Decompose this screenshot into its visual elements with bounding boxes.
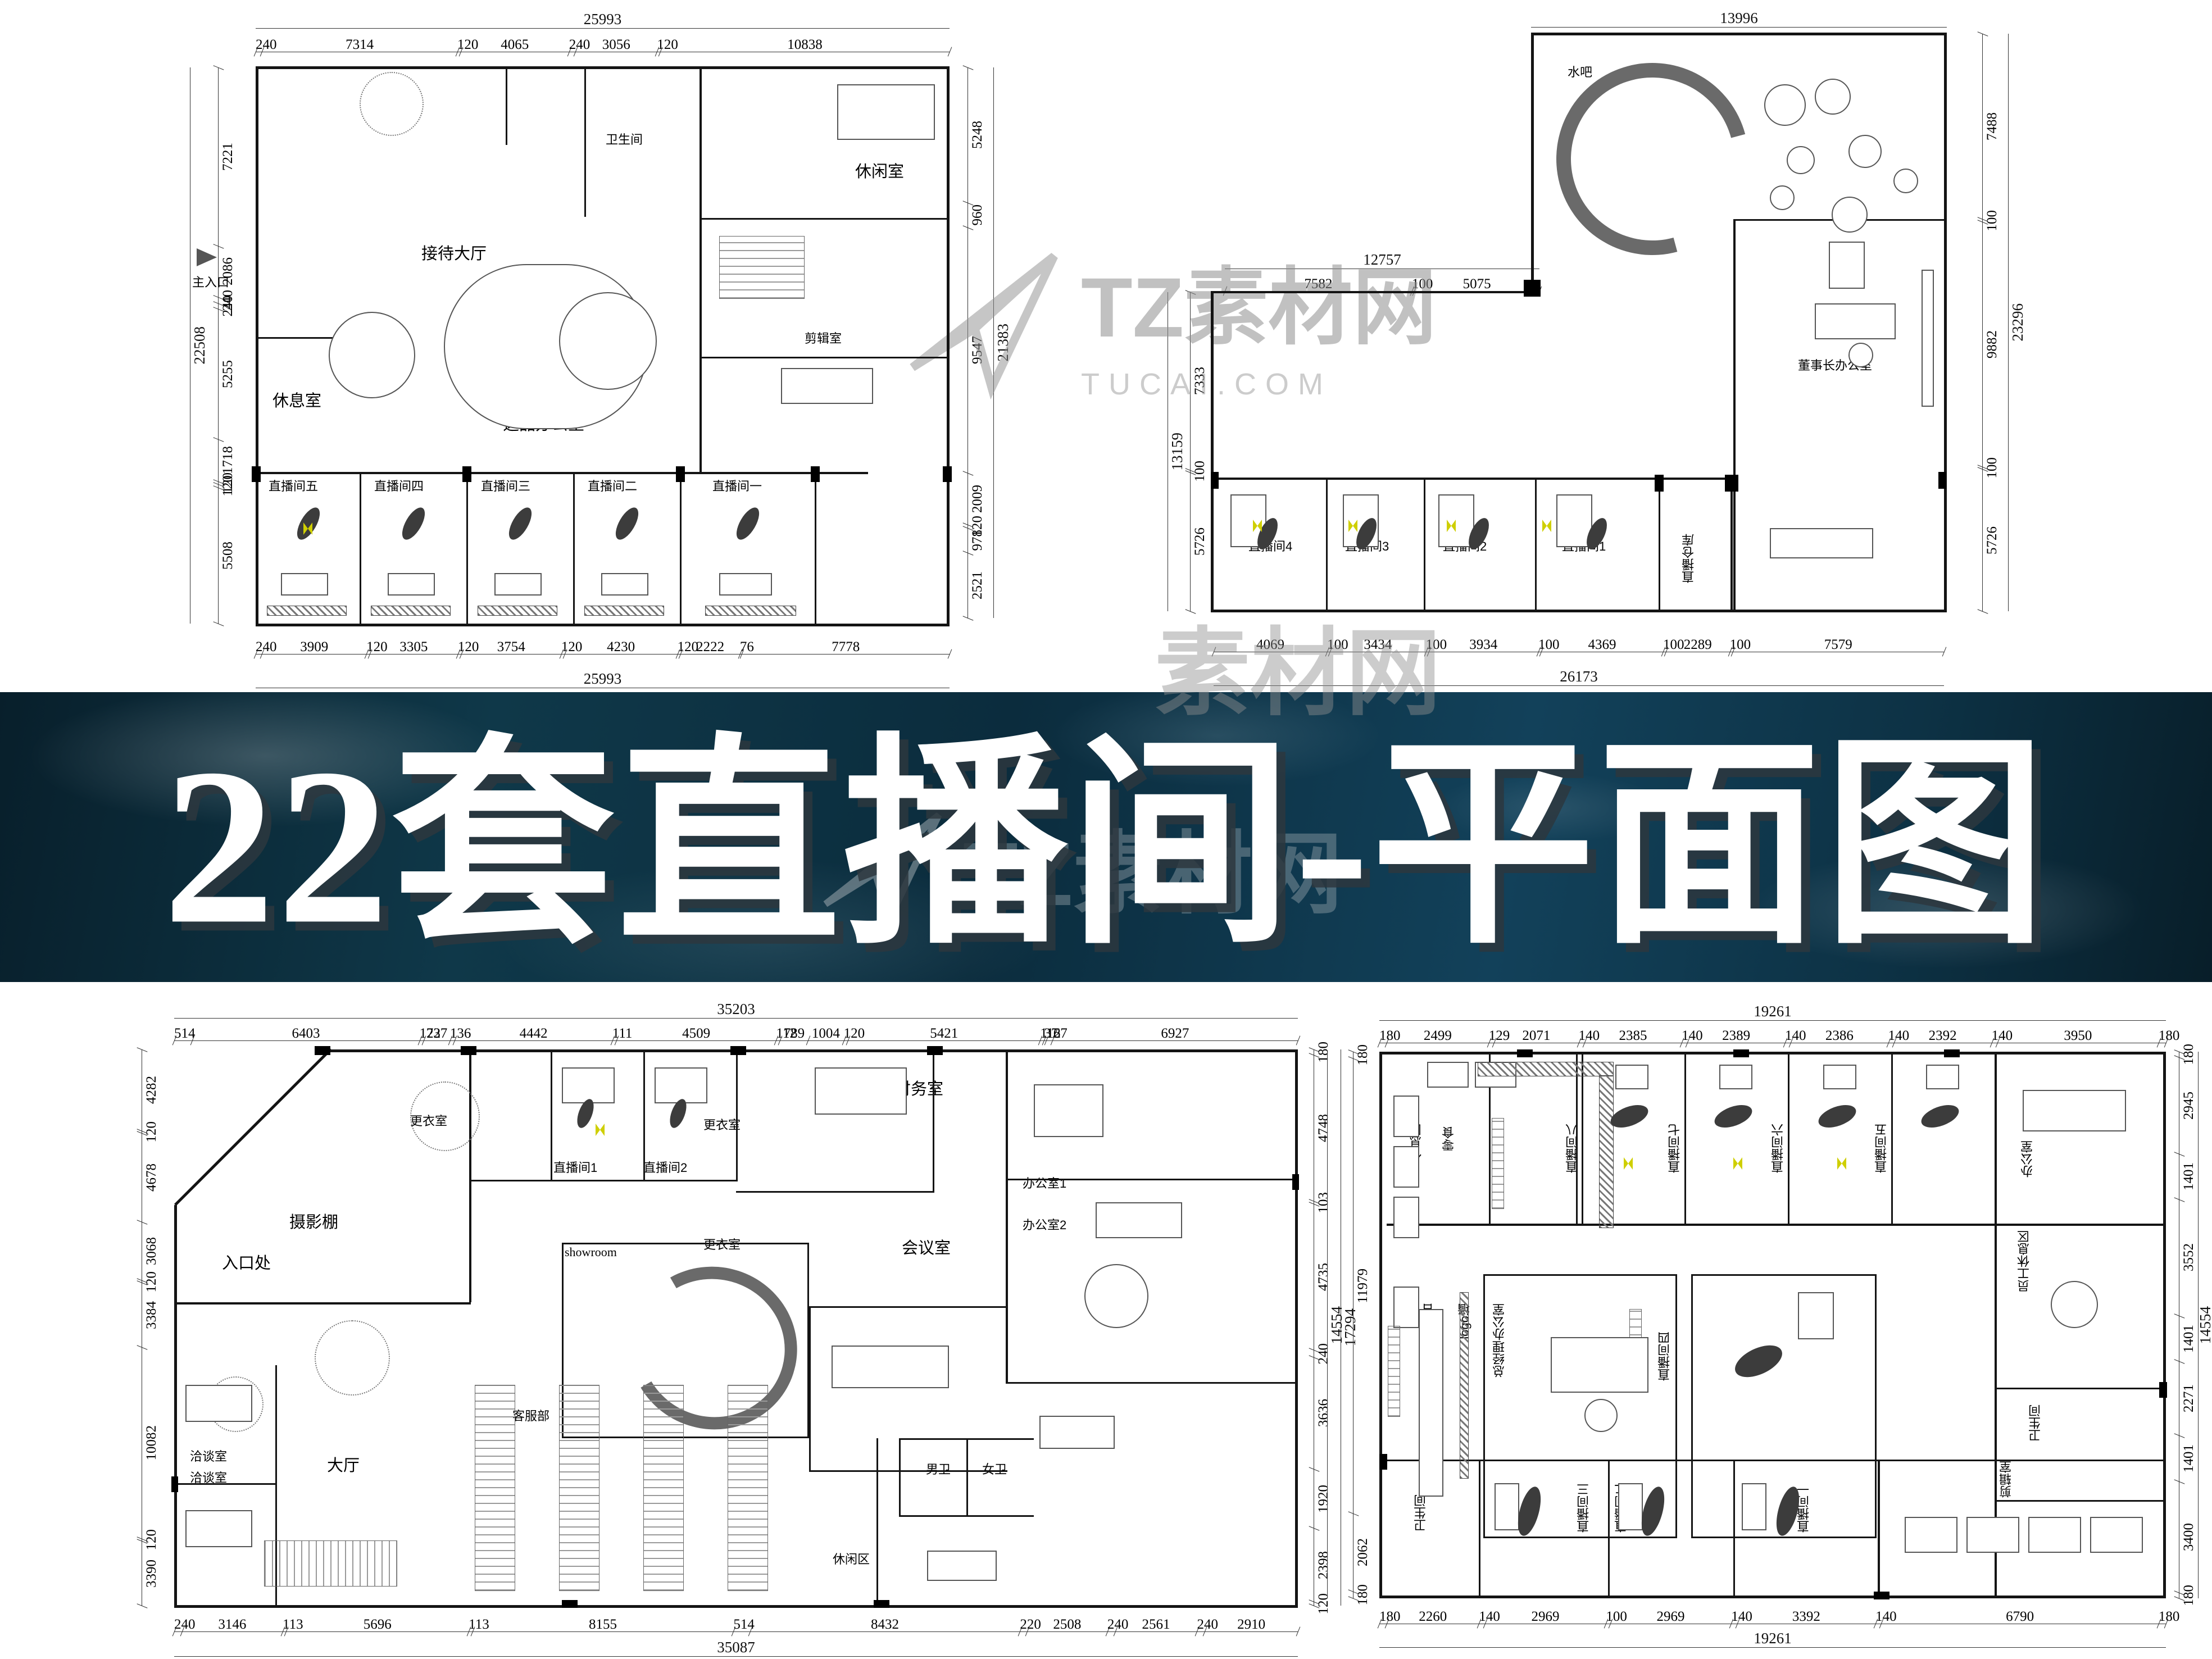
- dim-total-right: 21383: [993, 67, 1012, 618]
- seat-blob: [398, 504, 429, 543]
- room-label: 剪辑室: [2000, 1461, 2013, 1498]
- dim-segment: 3950: [1997, 1029, 2159, 1043]
- dim-segment: 240: [1197, 1617, 1205, 1631]
- furniture-shape: [1618, 1483, 1643, 1530]
- wall: [736, 1191, 934, 1193]
- furniture-shape: [927, 1551, 997, 1581]
- dim-segment: 112: [776, 1026, 780, 1040]
- furniture-shape: [1742, 1483, 1766, 1530]
- wall: [1483, 1274, 1485, 1538]
- room-label: 直播间2: [643, 1162, 687, 1174]
- wall: [1211, 291, 1534, 293]
- furniture-shape: [1815, 79, 1851, 115]
- dim-segment: 120: [1314, 1602, 1332, 1606]
- room-label: 直播仓库: [1683, 534, 1695, 583]
- dim-segment: 3434: [1330, 638, 1426, 652]
- furniture-shape: [410, 1081, 480, 1151]
- furniture-shape: [1764, 84, 1806, 126]
- dim-chain-left: 72212086240240525517181201205508: [218, 67, 237, 624]
- room-label: 直播间五: [1875, 1124, 1888, 1173]
- room-label: 休闲室: [855, 164, 904, 180]
- column-marker: [1725, 475, 1738, 492]
- wall: [174, 1205, 177, 1608]
- wall: [1788, 1053, 1789, 1224]
- wall: [1483, 1537, 1677, 1538]
- room-label: 洽谈室: [190, 1451, 227, 1463]
- furniture-shape: [832, 1346, 949, 1388]
- room-label: 更衣室: [703, 1119, 741, 1131]
- wall: [469, 1049, 471, 1302]
- room-label: 直播间三: [1578, 1483, 1590, 1533]
- dim-chain-top: 5146403122737136444211145091127891004120…: [174, 1022, 1298, 1041]
- dim-segment: 180: [2159, 1610, 2166, 1624]
- wall: [1387, 1224, 1999, 1226]
- furniture-shape: [267, 606, 347, 616]
- wall: [807, 1243, 809, 1438]
- room-label: 男卫: [926, 1463, 951, 1476]
- column-marker: [1938, 472, 1946, 489]
- dim-segment: 789: [780, 1026, 808, 1040]
- dim-segment: 7579: [1733, 638, 1944, 652]
- dim-segment: 1401: [2179, 1435, 2197, 1481]
- wall: [1006, 1382, 1295, 1384]
- dim-segment: 220: [1020, 1617, 1027, 1631]
- column-marker: [1211, 472, 1219, 489]
- wall: [1608, 1461, 1610, 1597]
- column-marker: [2159, 1382, 2167, 1398]
- furniture-shape: [371, 606, 451, 616]
- banner: TZ素材网 22套直播间-平面图: [0, 692, 2212, 982]
- dim-segment: 180: [1379, 1610, 1387, 1624]
- furniture-shape: [655, 1067, 707, 1103]
- dim-chain-top: 24073141204065240305612010838: [256, 34, 950, 52]
- dim-segment: 3056: [575, 38, 657, 52]
- seat-blob: [1730, 1339, 1787, 1384]
- dim-segment: 8432: [750, 1617, 1020, 1631]
- column-marker: [461, 1046, 476, 1055]
- furniture-shape: [281, 573, 328, 596]
- furniture-shape: [643, 1385, 684, 1591]
- dim-segment: 10082: [142, 1347, 160, 1539]
- dim-segment: 2910: [1205, 1617, 1298, 1631]
- dim-segment: 2062: [1353, 1513, 1371, 1592]
- dim-chain-right: 5248960954720091209782521: [968, 67, 986, 618]
- furniture-shape: [185, 1510, 252, 1547]
- furniture-shape: [1460, 1292, 1469, 1479]
- furniture-shape: [2090, 1517, 2143, 1553]
- furniture-shape: [1393, 1146, 1419, 1188]
- dim-segment: 180: [2159, 1029, 2166, 1043]
- wall: [466, 472, 468, 625]
- water-bar-arc: [1521, 28, 1783, 290]
- dim-segment: 960: [968, 203, 986, 228]
- dim-total-top: 25993: [256, 11, 950, 29]
- furniture-shape: [1719, 1065, 1752, 1089]
- furniture-shape: [185, 1385, 252, 1422]
- column-marker: [462, 466, 471, 482]
- room-label: 主入口: [192, 276, 229, 289]
- dim-segment: 240: [174, 1617, 182, 1631]
- furniture-shape: [1966, 1517, 2019, 1553]
- room-label: 直播间二: [588, 480, 637, 493]
- dim-chain-left: 4282120467830681203384100821203390: [142, 1049, 160, 1606]
- dim-total-top: 35203: [174, 1001, 1298, 1019]
- dim-chain-bottom: 406910034341003934100436910022891007579: [1214, 634, 1944, 652]
- dim-segment: 2969: [1485, 1610, 1606, 1624]
- column-marker: [811, 466, 820, 482]
- dim-segment: 129: [1489, 1029, 1494, 1043]
- furniture-shape: [728, 1385, 768, 1591]
- column-marker: [874, 1600, 889, 1608]
- dim-chain-left: 180119792062180: [1353, 1052, 1371, 1598]
- entrance-arrow-icon: [197, 248, 217, 266]
- light-marker: [1624, 1157, 1633, 1170]
- dim-segment: 140: [1785, 1029, 1791, 1043]
- dim-segment: 514: [174, 1026, 192, 1040]
- wall: [174, 1605, 1298, 1608]
- dim-segment: 2071: [1494, 1029, 1579, 1043]
- wall: [256, 66, 258, 626]
- room-label: 剪辑室: [805, 333, 842, 345]
- dim-segment: 2271: [2179, 1361, 2197, 1435]
- dim-segment: 7778: [742, 640, 950, 654]
- furniture-shape: [2028, 1517, 2081, 1553]
- dim-chain-right: 1802945140135521401227114013400180: [2179, 1052, 2197, 1598]
- wall: [562, 1243, 809, 1244]
- furniture-shape: [1798, 1292, 1834, 1339]
- furniture-shape: [1551, 1337, 1648, 1393]
- furniture-shape: [388, 573, 435, 596]
- wall: [1211, 291, 1214, 612]
- dim-segment: 180: [1353, 1592, 1371, 1598]
- dim-segment: 4282: [142, 1049, 160, 1131]
- room-label: 办公室: [2022, 1140, 2034, 1178]
- furniture-shape: [315, 1320, 390, 1396]
- furniture-shape: [601, 573, 648, 596]
- wall: [809, 1306, 1007, 1308]
- dim-segment: 100: [1606, 1610, 1610, 1624]
- wall: [815, 472, 816, 625]
- room-label: 更衣室: [703, 1239, 741, 1251]
- furniture-shape: [1823, 1065, 1856, 1089]
- furniture-shape: [1848, 343, 1873, 367]
- dim-segment: 5421: [848, 1026, 1040, 1040]
- dim-segment: 140: [1992, 1029, 1997, 1043]
- wall: [174, 1483, 276, 1485]
- seat-blob: [732, 504, 764, 543]
- column-marker: [1292, 1174, 1299, 1190]
- dim-segment: 5248: [968, 67, 986, 203]
- wall: [933, 1049, 934, 1193]
- furniture-shape: [1034, 1084, 1103, 1137]
- furniture-shape: [1478, 1062, 1614, 1076]
- dim-segment: 136: [450, 1026, 455, 1040]
- dim-segment: 2222: [680, 640, 740, 654]
- dim-segment: 4442: [455, 1026, 612, 1040]
- dim-segment: 3754: [461, 640, 561, 654]
- furniture-shape: [360, 72, 424, 136]
- dim-chain-bottom: 2403909120330512037541204230120222276777…: [256, 636, 950, 654]
- furniture-shape: [1815, 303, 1896, 339]
- column-marker: [562, 1600, 578, 1608]
- furniture-shape: [1393, 1287, 1419, 1328]
- wall: [700, 357, 947, 358]
- column-marker: [171, 1476, 178, 1492]
- wall: [700, 218, 947, 220]
- wall: [584, 66, 586, 217]
- room-label: 卫生间: [1415, 1494, 1427, 1531]
- wall: [899, 1515, 1034, 1517]
- dim-segment: 140: [1731, 1610, 1737, 1624]
- wall: [1875, 1274, 1877, 1538]
- dim-segment: 3909: [262, 640, 366, 654]
- column-marker: [676, 466, 685, 482]
- seat-blob: [611, 504, 643, 543]
- dim-segment: 3552: [2179, 1199, 2197, 1316]
- room-label: 入口处: [222, 1256, 271, 1272]
- furniture-shape: [559, 1385, 599, 1591]
- dim-segment: 3934: [1429, 638, 1538, 652]
- wall: [1733, 1461, 1735, 1597]
- dim-chain-right: 748810098821005726: [1982, 34, 2001, 611]
- dim-segment: 240: [256, 38, 262, 52]
- dim-segment: 120: [844, 1026, 848, 1040]
- dim-segment: 4678: [142, 1133, 160, 1222]
- showroom-arc: [611, 1248, 816, 1448]
- dim-sub-total: 12757: [1225, 252, 1539, 269]
- wall: [1295, 1049, 1298, 1608]
- dim-segment: 6790: [1881, 1610, 2159, 1624]
- room-label: 卫生间: [606, 134, 643, 146]
- dim-total-bottom: 25993: [256, 670, 950, 688]
- furniture-shape: [1495, 1483, 1519, 1530]
- dim-segment: 4509: [616, 1026, 776, 1040]
- furniture-shape: [264, 1540, 397, 1587]
- column-marker: [1524, 280, 1541, 297]
- room-label: 女卫: [982, 1463, 1007, 1476]
- dim-total-bottom: 19261: [1379, 1630, 2166, 1648]
- dim-segment: 140: [1875, 1610, 1881, 1624]
- room-label: 直播间五: [269, 480, 318, 493]
- wall: [809, 1306, 811, 1472]
- dim-segment: 7314: [262, 38, 457, 52]
- furniture-shape: [1599, 1075, 1614, 1228]
- column-marker: [1379, 1454, 1387, 1470]
- wall: [1684, 1053, 1686, 1224]
- dim-total-left: 13159: [1168, 292, 1186, 611]
- dim-segment: 9547: [968, 228, 986, 474]
- seat-blob: [1815, 1101, 1859, 1132]
- wall: [700, 66, 702, 473]
- dim-segment: 2289: [1666, 638, 1730, 652]
- furniture-shape: [1096, 1202, 1182, 1238]
- wall: [360, 472, 361, 625]
- furniture-shape: [1770, 185, 1795, 210]
- dim-segment: 5726: [1191, 472, 1209, 611]
- room-label: 水吧: [1568, 66, 1592, 79]
- column-marker: [730, 1046, 746, 1055]
- wall: [1531, 33, 1534, 285]
- wall: [1535, 478, 1537, 610]
- dim-segment: 5508: [219, 488, 237, 624]
- furniture-shape: [1393, 1096, 1419, 1137]
- dim-segment: 9882: [1983, 222, 2001, 467]
- wall: [876, 1438, 878, 1606]
- furniture-shape: [2023, 1090, 2126, 1131]
- dim-total-right: 14554: [2198, 1052, 2212, 1598]
- furniture-shape: [1905, 1517, 1957, 1553]
- seat-blob: [1607, 1101, 1651, 1132]
- furniture-shape: [781, 368, 873, 404]
- dim-segment: 6403: [192, 1026, 419, 1040]
- dim-segment: 1401: [2179, 1316, 2197, 1361]
- light-marker: [1542, 520, 1551, 532]
- dim-segment: 122: [420, 1026, 424, 1040]
- wall: [966, 1438, 968, 1517]
- room-label: 办公室2: [1023, 1219, 1066, 1231]
- wall: [1379, 1052, 1382, 1598]
- banner-title: 22套直播间-平面图: [0, 692, 2212, 982]
- wall: [1995, 1500, 2164, 1502]
- room-label: 大厅: [327, 1458, 360, 1474]
- column-marker: [315, 1046, 330, 1055]
- furniture-shape: [719, 236, 805, 299]
- wall: [736, 1049, 738, 1181]
- column-marker: [943, 466, 952, 482]
- dim-segment: 11979: [1353, 1058, 1371, 1513]
- wall: [256, 66, 950, 69]
- wall: [1944, 33, 1947, 612]
- wall: [256, 472, 868, 474]
- wall: [1211, 610, 1947, 612]
- dim-segment: 180: [1353, 1052, 1371, 1058]
- wall: [1730, 478, 1733, 610]
- dim-segment: 2389: [1687, 1029, 1785, 1043]
- furniture-shape: [559, 292, 657, 390]
- dim-segment: 180: [2179, 1052, 2197, 1057]
- dim-segment: 2386: [1791, 1029, 1888, 1043]
- wall: [1691, 1537, 1877, 1538]
- room-label: 直播间1: [553, 1162, 597, 1174]
- furniture-shape: [584, 606, 664, 616]
- furniture-shape: [1770, 528, 1873, 558]
- dim-segment: 3392: [1737, 1610, 1876, 1624]
- wall: [506, 66, 507, 145]
- column-marker: [1944, 1049, 1960, 1057]
- room-label: 休闲区: [833, 1553, 870, 1566]
- furniture-shape: [719, 573, 772, 596]
- dim-total-top: 13996: [1531, 10, 1947, 28]
- dim-segment: 2561: [1115, 1617, 1197, 1631]
- furniture-shape: [1419, 1309, 1443, 1497]
- dim-segment: 4069: [1214, 638, 1327, 652]
- light-marker: [596, 1124, 605, 1136]
- column-marker: [252, 466, 261, 482]
- dim-segment: 4230: [565, 640, 678, 654]
- dim-segment: 4065: [461, 38, 569, 52]
- room-label: 直播间四: [1659, 1331, 1671, 1381]
- dim-segment: 737: [424, 1026, 450, 1040]
- dim-chain-left: 73331005726: [1190, 292, 1209, 611]
- wall: [1995, 1224, 2164, 1226]
- seat-blob: [505, 504, 536, 543]
- wall: [1387, 1460, 2163, 1461]
- dim-segment: 8155: [473, 1617, 734, 1631]
- furniture-shape: [837, 84, 935, 140]
- dim-total-bottom: 35087: [174, 1639, 1298, 1657]
- dim-segment: 7488: [1983, 34, 2001, 219]
- dim-segment: 140: [1682, 1029, 1687, 1043]
- furniture-shape: [1848, 135, 1882, 168]
- wall: [1326, 478, 1328, 610]
- dim-segment: 6927: [1052, 1026, 1298, 1040]
- dim-segment: 5255: [219, 309, 237, 439]
- wall: [1691, 1274, 1693, 1538]
- furniture-shape: [1084, 1264, 1148, 1328]
- room-label: 直播间一: [1798, 1483, 1810, 1533]
- dim-segment: 5696: [286, 1617, 469, 1631]
- room-label: 直播间四: [374, 480, 424, 493]
- wall: [1995, 1388, 2164, 1389]
- room-label: 洽谈室: [190, 1472, 227, 1484]
- dim-segment: 1004: [808, 1026, 843, 1040]
- poster: 25993 24073141204065240305612010838 2403…: [0, 0, 2212, 1659]
- furniture-shape: [475, 1385, 515, 1591]
- dim-chain-bottom: 2403146113569611381555148432220250824025…: [174, 1613, 1298, 1632]
- wall: [1006, 1179, 1295, 1180]
- furniture-shape: [1584, 1399, 1618, 1432]
- wall: [1691, 1274, 1877, 1276]
- dim-segment: 3384: [142, 1283, 160, 1347]
- dim-segment: 7221: [219, 67, 237, 246]
- dim-total-bottom: 26173: [1214, 667, 1944, 686]
- dim-segment: 2499: [1387, 1029, 1489, 1043]
- dim-segment: 2945: [2179, 1057, 2197, 1153]
- dim-sub-chain: 75821005075: [1225, 273, 1539, 292]
- furniture-shape: [1393, 1197, 1419, 1238]
- wall: [174, 1048, 332, 1206]
- dim-segment: 180: [2179, 1593, 2197, 1598]
- dim-segment: 140: [1479, 1610, 1484, 1624]
- wall: [947, 66, 950, 626]
- column-marker: [927, 1046, 943, 1055]
- wall: [1576, 1053, 1578, 1225]
- dim-total-top: 19261: [1379, 1003, 2166, 1021]
- dim-total-right: 23296: [2008, 34, 2027, 611]
- dim-segment: 240: [219, 303, 237, 310]
- furniture-shape: [1829, 242, 1865, 289]
- dim-segment: 10838: [660, 38, 950, 52]
- dim-segment: 514: [733, 1617, 750, 1631]
- dim-segment: 2521: [968, 553, 986, 618]
- wall: [1006, 1049, 1008, 1384]
- room-label: 直播间六: [1772, 1124, 1784, 1173]
- room-label: 总经理办公室: [1493, 1303, 1506, 1378]
- room-label: 休息室: [272, 393, 321, 410]
- dim-segment: 4369: [1541, 638, 1663, 652]
- room-label: 接待大厅: [421, 246, 487, 262]
- dim-segment: 2260: [1387, 1610, 1479, 1624]
- dim-segment: 240: [1107, 1617, 1115, 1631]
- dim-segment: 2392: [1894, 1029, 1992, 1043]
- furniture-shape: [1039, 1416, 1115, 1449]
- furniture-shape: [1787, 146, 1815, 174]
- dim-segment: 167: [1046, 1026, 1052, 1040]
- dim-segment: 5075: [1414, 277, 1539, 291]
- dim-chain-bottom: 18022601402969100296914033921406790180: [1379, 1606, 2166, 1624]
- dim-total-left: 14554: [1327, 1052, 1346, 1598]
- dim-segment: 2385: [1584, 1029, 1682, 1043]
